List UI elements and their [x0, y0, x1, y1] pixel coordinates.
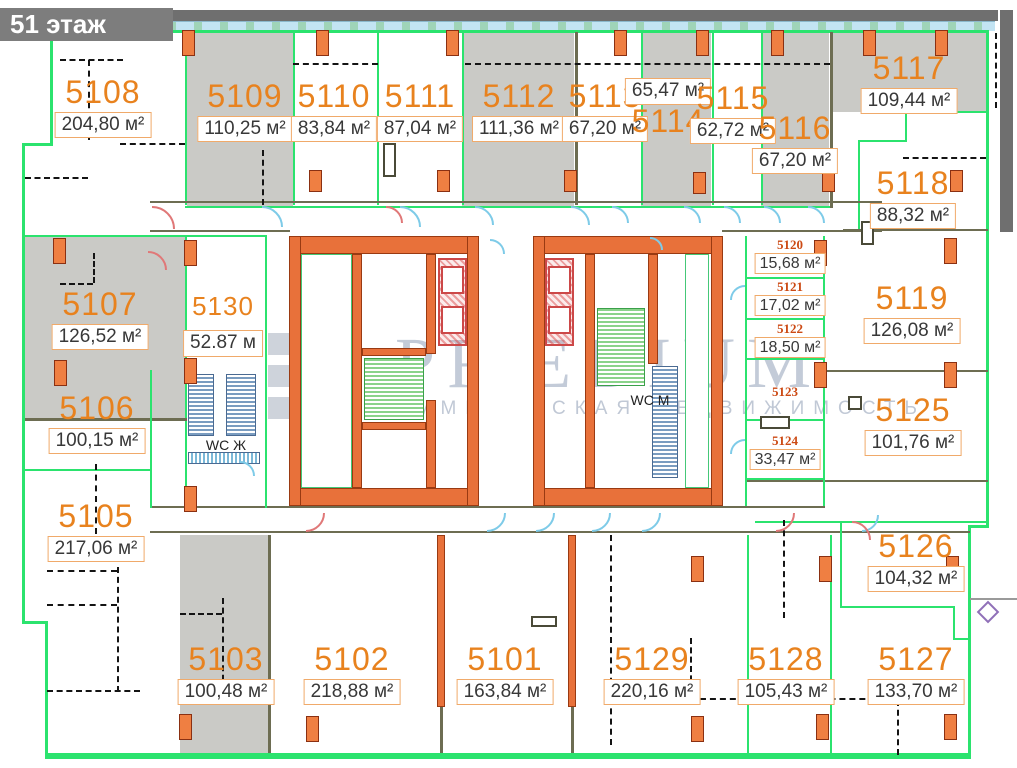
unit-label-5119: 5119 126,08 м²	[864, 282, 961, 344]
floor-plan: PRÆDIUM КОММЕРЧЕСКАЯ НЕДВИЖИМОСТЬ	[0, 0, 1017, 768]
unit-number: 5105	[48, 500, 145, 534]
unit-label-5127: 5127 133,70 м²	[868, 643, 965, 705]
unit-number: 5116	[752, 112, 838, 146]
door-arc	[731, 286, 745, 300]
door-arc	[487, 513, 505, 531]
door-arc	[808, 207, 824, 223]
unit-label-5106: 5106 100,15 м²	[49, 392, 146, 454]
unit-label-5109: 5109 110,25 м²	[197, 80, 292, 142]
unit-number: 5130	[183, 293, 263, 320]
unit-number: 5118	[870, 167, 956, 201]
unit-area: 217,06 м²	[48, 536, 145, 563]
door-arc	[536, 513, 554, 531]
unit-label-5128: 5128 105,43 м²	[738, 643, 835, 705]
unit-label-5130: 5130 52.87 м	[183, 293, 263, 357]
unit-label-5118: 5118 88,32 м²	[870, 167, 956, 229]
unit-area: 100,48 м²	[178, 679, 275, 706]
unit-number: 5119	[864, 282, 961, 316]
unit-area: 105,43 м²	[738, 679, 835, 706]
door-arc	[731, 440, 745, 454]
unit-number: 5129	[604, 643, 701, 677]
door-arc	[650, 238, 662, 250]
unit-number: 5103	[178, 643, 275, 677]
door-arc	[612, 207, 628, 223]
door-arc	[490, 240, 504, 254]
unit-label-5107: 5107 126,52 м²	[52, 288, 149, 350]
door-arc-red	[776, 513, 794, 531]
unit-number: 5112	[472, 80, 566, 114]
unit-number: 5107	[52, 288, 149, 322]
unit-area: 67,20 м²	[752, 148, 838, 175]
unit-area: 109,44 м²	[861, 88, 958, 115]
door-arc-red	[306, 513, 324, 531]
unit-label-5103: 5103 100,48 м²	[178, 643, 275, 705]
unit-area: 100,15 м²	[49, 428, 146, 455]
unit-label-5126: 5126 104,32 м²	[868, 530, 965, 592]
unit-number: 5117	[861, 52, 958, 86]
unit-area: 111,36 м²	[472, 116, 566, 143]
unit-number: 5123	[772, 385, 798, 399]
unit-label-5102: 5102 218,88 м²	[304, 643, 401, 705]
unit-label-5110: 5110 83,84 м²	[291, 80, 377, 142]
unit-number: 5101	[457, 643, 554, 677]
unit-area: 220,16 м²	[604, 679, 701, 706]
unit-number: 5126	[868, 530, 965, 564]
unit-label-5111: 5111 87,04 м²	[377, 80, 463, 142]
unit-number: 5124	[750, 434, 821, 448]
unit-area: 83,84 м²	[291, 116, 377, 143]
unit-label-5108: 5108 204,80 м²	[55, 76, 152, 138]
door-arc	[592, 513, 610, 531]
unit-area: 110,25 м²	[197, 116, 292, 143]
door-arc	[684, 207, 700, 223]
door-arc-red	[148, 252, 166, 270]
door-arc-red	[152, 207, 174, 229]
unit-number: 5120	[755, 238, 826, 252]
unit-number: 5121	[755, 280, 826, 294]
unit-label-5123: 5123	[772, 385, 798, 399]
unit-label-5112: 5112 111,36 м²	[472, 80, 566, 142]
unit-label-5117: 5117 109,44 м²	[861, 52, 958, 114]
unit-area: 33,47 м²	[750, 449, 821, 470]
unit-number: 5102	[304, 643, 401, 677]
unit-area: 52.87 м	[183, 330, 263, 357]
door-arc	[862, 515, 878, 531]
unit-label-5125: 5125 101,76 м²	[865, 394, 962, 456]
unit-number: 5111	[377, 80, 463, 114]
unit-area: 204,80 м²	[55, 112, 152, 139]
unit-area: 87,04 м²	[377, 116, 463, 143]
door-arc	[475, 207, 493, 225]
door-arc	[642, 513, 660, 531]
unit-number: 5110	[291, 80, 377, 114]
unit-label-5129: 5129 220,16 м²	[604, 643, 701, 705]
unit-area: 126,08 м²	[864, 318, 961, 345]
door-arc	[764, 207, 780, 223]
door-arc-red	[386, 207, 402, 223]
unit-label-5116: 5116 67,20 м²	[752, 112, 838, 174]
unit-area: 163,84 м²	[457, 679, 554, 706]
unit-area: 218,88 м²	[304, 679, 401, 706]
unit-label-5122: 5122 18,50 м²	[755, 322, 826, 358]
floor-title: 51 этаж	[0, 8, 173, 41]
unit-number: 5127	[868, 643, 965, 677]
unit-area: 15,68 м²	[755, 253, 826, 274]
unit-label-5105: 5105 217,06 м²	[48, 500, 145, 562]
unit-area: 104,32 м²	[868, 566, 965, 593]
unit-area: 17,02 м²	[755, 295, 826, 316]
unit-area: 133,70 м²	[868, 679, 965, 706]
unit-number: 5106	[49, 392, 146, 426]
door-arc	[262, 207, 282, 227]
door-arc	[724, 207, 740, 223]
unit-label-5124: 5124 33,47 м²	[750, 434, 821, 470]
door-arc	[400, 207, 420, 227]
unit-label-5101: 5101 163,84 м²	[457, 643, 554, 705]
unit-area: 88,32 м²	[870, 203, 956, 230]
unit-area: 101,76 м²	[865, 430, 962, 457]
unit-label-5120: 5120 15,68 м²	[755, 238, 826, 274]
unit-number: 5109	[197, 80, 292, 114]
unit-number: 5108	[55, 76, 152, 110]
unit-number: 5122	[755, 322, 826, 336]
door-arc	[240, 462, 254, 476]
unit-number: 5125	[865, 394, 962, 428]
unit-number: 5128	[738, 643, 835, 677]
unit-area: 18,50 м²	[755, 337, 826, 358]
unit-label-5121: 5121 17,02 м²	[755, 280, 826, 316]
unit-area: 126,52 м²	[52, 324, 149, 351]
door-arc	[571, 207, 589, 225]
